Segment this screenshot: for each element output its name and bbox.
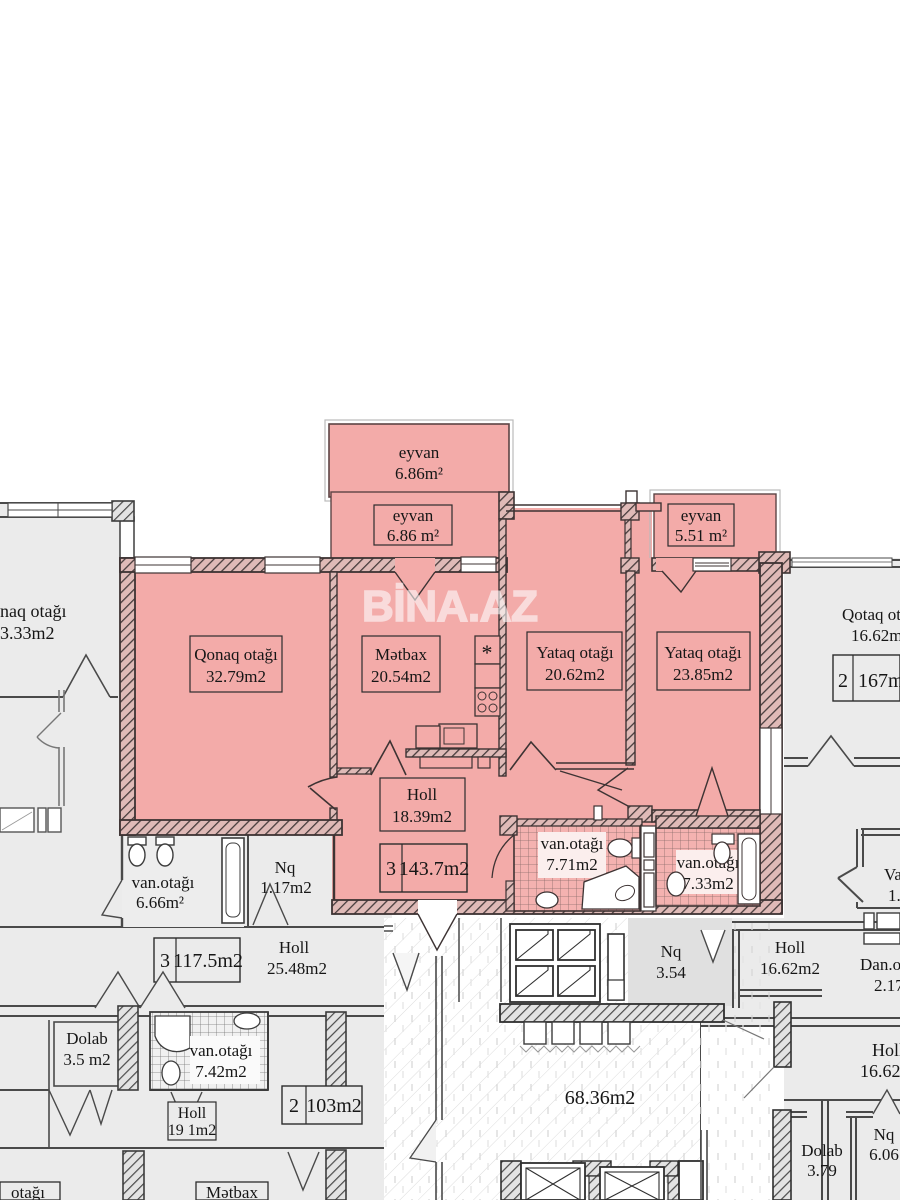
svg-text:1.17m2: 1.17m2 [260, 878, 311, 897]
svg-text:BİNA.AZ: BİNA.AZ [362, 582, 538, 631]
svg-text:Mətbax: Mətbax [375, 645, 427, 664]
svg-text:117.5m2: 117.5m2 [173, 950, 243, 972]
svg-text:Holl: Holl [279, 938, 310, 957]
svg-text:3.79: 3.79 [807, 1161, 837, 1180]
svg-text:naq otağı: naq otağı [0, 601, 66, 621]
svg-text:6.86m²: 6.86m² [395, 464, 443, 483]
svg-text:2.17m: 2.17m [874, 976, 900, 995]
svg-text:Holl: Holl [872, 1040, 900, 1060]
svg-text:Nq: Nq [275, 858, 296, 877]
svg-text:otağı: otağı [11, 1183, 45, 1200]
svg-text:3: 3 [386, 858, 396, 880]
svg-text:Nq: Nq [874, 1125, 895, 1144]
svg-text:Dan.otağı: Dan.otağı [860, 955, 900, 974]
svg-text:6.66m²: 6.66m² [136, 893, 184, 912]
svg-text:7.71m2: 7.71m2 [546, 855, 597, 874]
svg-text:*: * [482, 640, 493, 665]
svg-text:167m2: 167m2 [858, 670, 900, 692]
svg-text:3.5 m2: 3.5 m2 [63, 1050, 110, 1069]
svg-text:19 1m2: 19 1m2 [168, 1122, 216, 1139]
svg-text:32.79m2: 32.79m2 [206, 667, 266, 686]
svg-text:van.otağı: van.otağı [541, 834, 604, 853]
svg-text:Yataq otağı: Yataq otağı [664, 643, 741, 662]
svg-text:6.06: 6.06 [869, 1145, 899, 1164]
svg-text:25.48m2: 25.48m2 [267, 959, 327, 978]
svg-text:van.otağı: van.otağı [190, 1041, 253, 1060]
svg-text:6.86 m²: 6.86 m² [387, 526, 439, 545]
svg-text:68.36m2: 68.36m2 [565, 1087, 636, 1109]
svg-text:Dolab: Dolab [66, 1029, 108, 1048]
svg-text:2: 2 [289, 1095, 299, 1117]
svg-text:Holl: Holl [407, 785, 438, 804]
svg-text:3: 3 [160, 950, 170, 972]
svg-text:Holl: Holl [178, 1105, 207, 1122]
svg-text:Mətbax: Mətbax [206, 1183, 258, 1200]
svg-text:eyvan: eyvan [681, 506, 722, 525]
svg-text:Yataq otağı: Yataq otağı [536, 643, 613, 662]
svg-text:5.51 m²: 5.51 m² [675, 526, 727, 545]
svg-text:Van: Van [884, 865, 900, 884]
svg-text:1.6: 1.6 [888, 886, 900, 905]
svg-text:Qonaq otağı: Qonaq otağı [194, 645, 278, 664]
svg-text:2: 2 [838, 670, 848, 692]
svg-text:Qotaq otağı: Qotaq otağı [842, 605, 900, 624]
svg-text:Nq: Nq [661, 942, 682, 961]
svg-text:16.62m2: 16.62m2 [860, 1061, 900, 1081]
svg-text:20.54m2: 20.54m2 [371, 667, 431, 686]
svg-text:3.33m2: 3.33m2 [0, 623, 55, 643]
svg-text:20.62m2: 20.62m2 [545, 665, 605, 684]
svg-text:7.42m2: 7.42m2 [195, 1062, 246, 1081]
svg-text:eyvan: eyvan [399, 443, 440, 462]
svg-text:Holl: Holl [775, 938, 806, 957]
svg-text:23.85m2: 23.85m2 [673, 665, 733, 684]
svg-text:18.39m2: 18.39m2 [392, 807, 452, 826]
svg-text:103m2: 103m2 [306, 1095, 362, 1117]
svg-text:16.62m²: 16.62m² [851, 626, 900, 645]
svg-text:143.7m2: 143.7m2 [399, 858, 470, 880]
svg-text:van.otağı: van.otağı [132, 873, 195, 892]
svg-text:eyvan: eyvan [393, 506, 434, 525]
svg-text:7.33m2: 7.33m2 [682, 874, 733, 893]
svg-text:3.54: 3.54 [656, 963, 686, 982]
svg-text:Dolab: Dolab [801, 1141, 843, 1160]
